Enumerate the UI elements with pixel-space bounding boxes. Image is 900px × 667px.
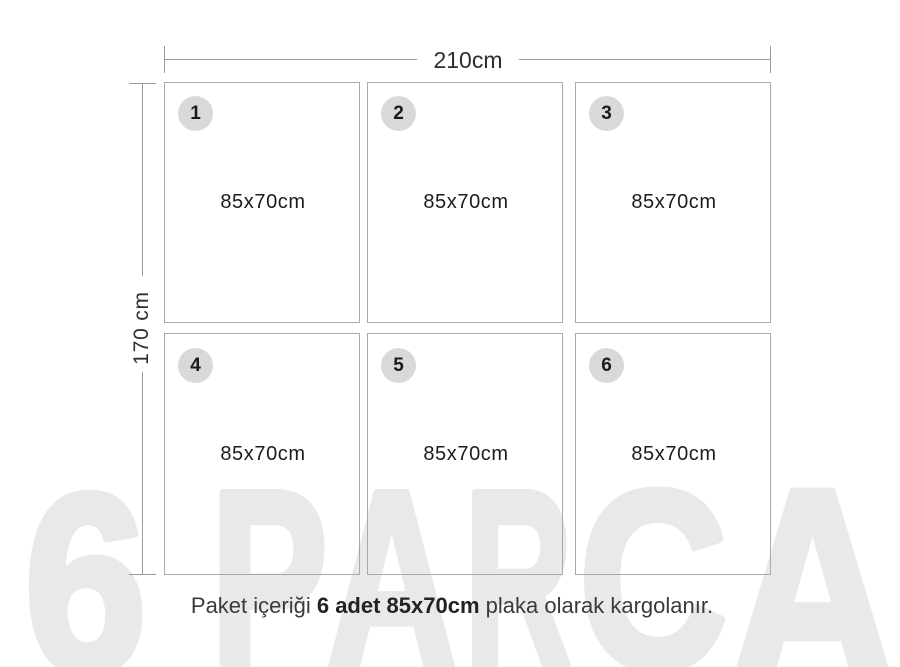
svg-text:6: 6	[24, 441, 147, 667]
